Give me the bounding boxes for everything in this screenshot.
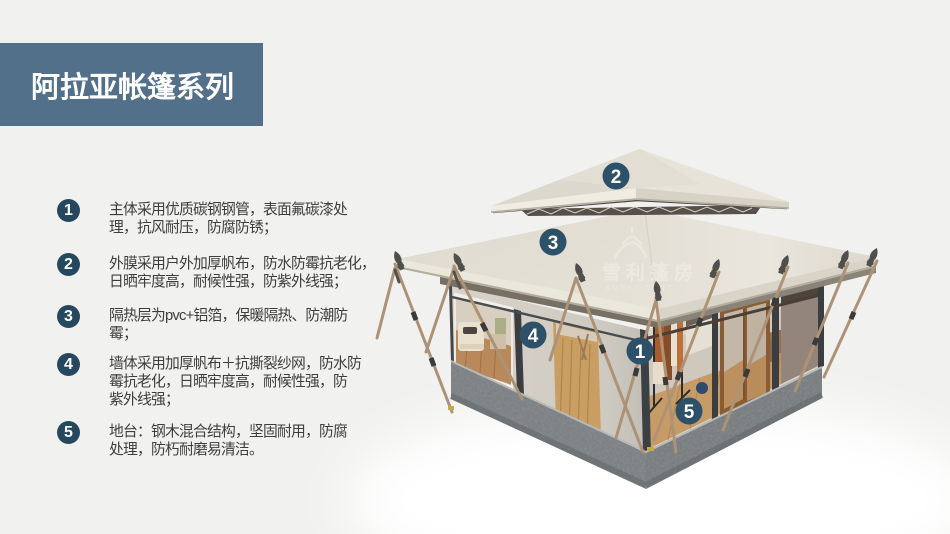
svg-text:XUELI TENT: XUELI TENT [605, 283, 674, 292]
svg-text:3: 3 [548, 233, 559, 254]
svg-text:1: 1 [635, 342, 646, 363]
svg-text:雪利篷房: 雪利篷房 [602, 261, 698, 284]
svg-text:2: 2 [611, 167, 622, 188]
svg-text:4: 4 [528, 326, 539, 347]
svg-text:5: 5 [684, 402, 695, 423]
